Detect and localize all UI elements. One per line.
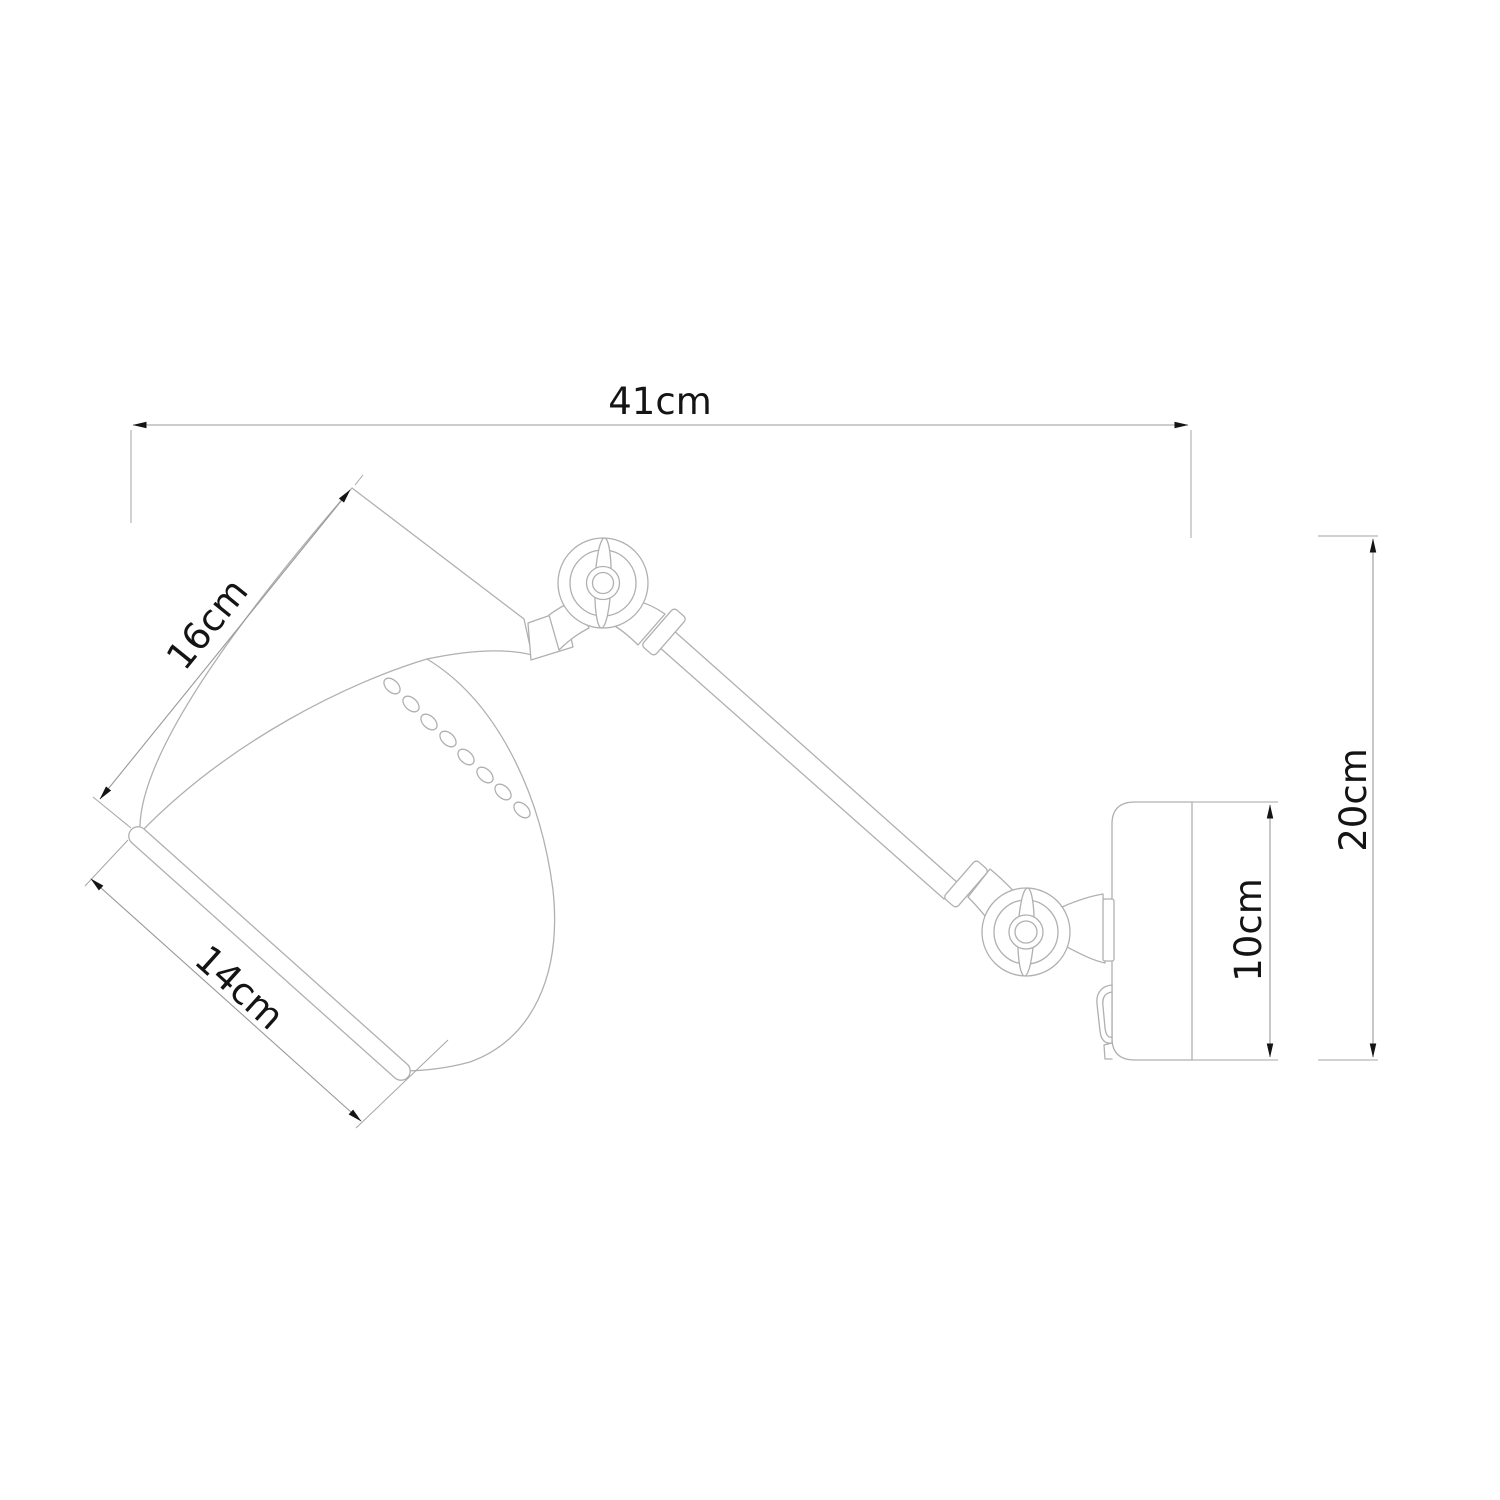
dimension-label-10cm: 10cm [1227,878,1270,981]
dimension-label-41cm: 41cm [608,380,711,423]
mount-flange [1103,899,1114,961]
ext-16cm-bottom [93,797,131,828]
technical-drawing-page: 41cm 16cm 14cm 10cm 20cm [0,0,1500,1500]
wall-mount [1112,802,1192,1060]
lamp-arm [658,630,959,899]
power-switch [1097,985,1112,1059]
ext-16cm-top [355,475,363,485]
wall-lamp-diagram: 41cm 16cm 14cm 10cm 20cm [0,0,1500,1500]
swivel-joint-top [558,538,648,629]
dimension-label-20cm: 20cm [1332,748,1375,851]
swivel-joint-bottom [982,888,1070,977]
lamp-line-art [129,488,1192,1080]
